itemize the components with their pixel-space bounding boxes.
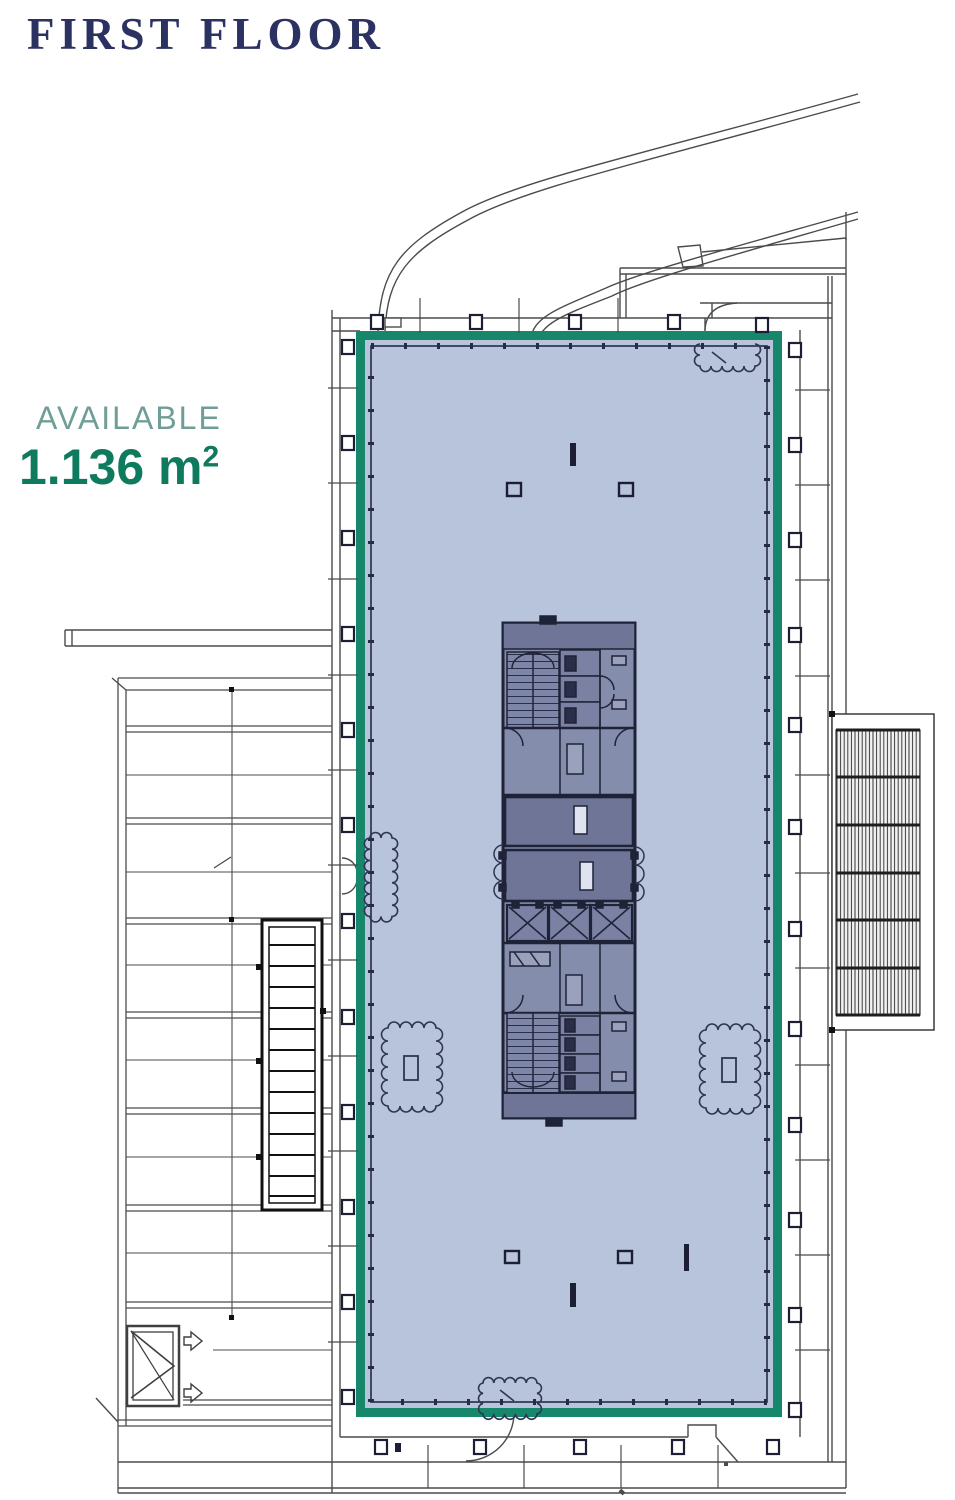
stair-top [507,652,559,728]
stair-bottom [507,1013,559,1093]
louver-structure [829,711,934,1033]
brochure-page: FIRST FLOOR AVAILABLE 1.136 m2 [0,0,955,1500]
direction-arrows [184,1332,202,1402]
floor-plan [0,0,955,1500]
page-title: FIRST FLOOR [27,8,385,60]
elevator-shafts [507,902,632,941]
ramp-lines [378,94,860,344]
ramp-box [127,1326,179,1406]
area-value: 1.136 m2 [19,438,219,496]
elevator-lobbies [499,797,638,901]
availability-label: AVAILABLE [36,400,222,437]
parking-ramp-ladder [256,920,326,1210]
area-number: 1.136 m [19,439,202,495]
building-core [494,616,644,1126]
area-superscript: 2 [202,440,219,473]
